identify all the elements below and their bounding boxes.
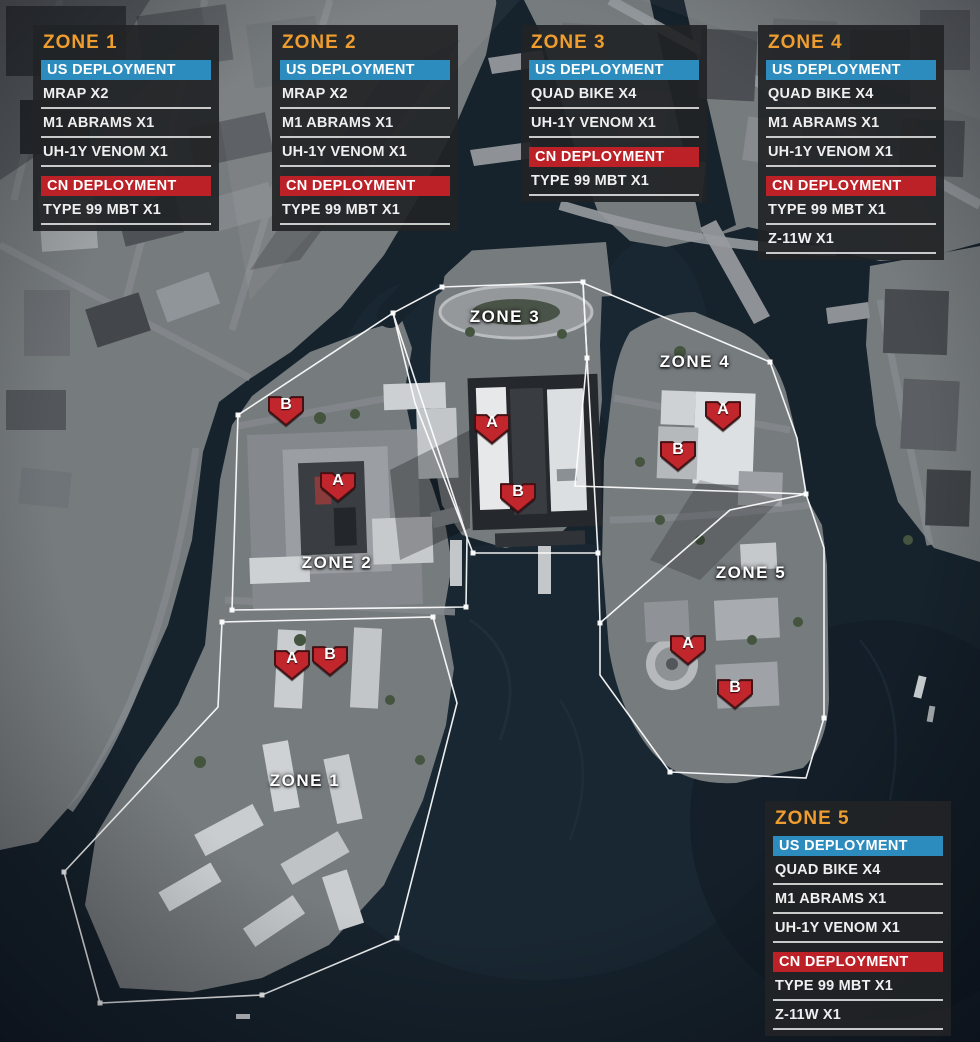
flag-letter: A <box>703 401 743 419</box>
vehicle-row: M1 ABRAMS X1 <box>41 109 211 138</box>
vehicle-row: TYPE 99 MBT X1 <box>766 196 936 225</box>
vehicle-row: UH-1Y VENOM X1 <box>766 138 936 167</box>
flag-letter: B <box>658 441 698 459</box>
vehicle-row: TYPE 99 MBT X1 <box>280 196 450 225</box>
vehicle-row: QUAD BIKE X4 <box>773 856 943 885</box>
vehicle-row: UH-1Y VENOM X1 <box>529 109 699 138</box>
map-zone-label-5: ZONE 5 <box>716 563 786 583</box>
vehicle-row: MRAP X2 <box>280 80 450 109</box>
zone-5-panel: ZONE 5 US DEPLOYMENT QUAD BIKE X4 M1 ABR… <box>765 801 951 1036</box>
zone-2-panel: ZONE 2 US DEPLOYMENT MRAP X2 M1 ABRAMS X… <box>272 25 458 231</box>
flag-letter: A <box>668 635 708 653</box>
cn-deployment-header: CN DEPLOYMENT <box>766 176 936 196</box>
cn-deployment-header: CN DEPLOYMENT <box>280 176 450 196</box>
vehicle-row: TYPE 99 MBT X1 <box>41 196 211 225</box>
vehicle-row: TYPE 99 MBT X1 <box>529 167 699 196</box>
vehicle-row: M1 ABRAMS X1 <box>766 109 936 138</box>
flag-letter: A <box>318 472 358 490</box>
flag-marker: B <box>715 674 755 712</box>
vehicle-row: UH-1Y VENOM X1 <box>280 138 450 167</box>
flag-letter: A <box>472 414 512 432</box>
us-deployment-header: US DEPLOYMENT <box>41 60 211 80</box>
zone-title: ZONE 1 <box>41 29 211 60</box>
zone-3-panel: ZONE 3 US DEPLOYMENT QUAD BIKE X4 UH-1Y … <box>521 25 707 202</box>
vehicle-row: QUAD BIKE X4 <box>529 80 699 109</box>
map-zone-label-2: ZONE 2 <box>302 553 372 573</box>
flag-marker: A <box>272 645 312 683</box>
vehicle-row: QUAD BIKE X4 <box>766 80 936 109</box>
flag-marker: A <box>318 467 358 505</box>
map-zone-label-1: ZONE 1 <box>270 771 340 791</box>
flag-marker: A <box>703 396 743 434</box>
flag-marker: B <box>658 436 698 474</box>
vehicle-row: M1 ABRAMS X1 <box>280 109 450 138</box>
map-zone-label-4: ZONE 4 <box>660 352 730 372</box>
map-screen: ZONE 1 ZONE 2 ZONE 3 ZONE 4 ZONE 5 A B A… <box>0 0 980 1042</box>
vehicle-row: TYPE 99 MBT X1 <box>773 972 943 1001</box>
flag-letter: B <box>715 679 755 697</box>
flag-letter: B <box>498 483 538 501</box>
vehicle-row: UH-1Y VENOM X1 <box>773 914 943 943</box>
vehicle-row: Z-11W X1 <box>766 225 936 254</box>
flag-letter: B <box>310 646 350 664</box>
cn-deployment-header: CN DEPLOYMENT <box>773 952 943 972</box>
vehicle-row: M1 ABRAMS X1 <box>773 885 943 914</box>
vehicle-row: Z-11W X1 <box>773 1001 943 1030</box>
us-deployment-header: US DEPLOYMENT <box>529 60 699 80</box>
flag-marker: B <box>266 391 306 429</box>
us-deployment-header: US DEPLOYMENT <box>773 836 943 856</box>
flag-letter: A <box>272 650 312 668</box>
zone-title: ZONE 3 <box>529 29 699 60</box>
zone-4-panel: ZONE 4 US DEPLOYMENT QUAD BIKE X4 M1 ABR… <box>758 25 944 260</box>
flag-marker: A <box>472 409 512 447</box>
vehicle-row: MRAP X2 <box>41 80 211 109</box>
us-deployment-header: US DEPLOYMENT <box>766 60 936 80</box>
cn-deployment-header: CN DEPLOYMENT <box>529 147 699 167</box>
flag-marker: A <box>668 630 708 668</box>
flag-letter: B <box>266 396 306 414</box>
map-zone-label-3: ZONE 3 <box>470 307 540 327</box>
us-deployment-header: US DEPLOYMENT <box>280 60 450 80</box>
cn-deployment-header: CN DEPLOYMENT <box>41 176 211 196</box>
zone-1-panel: ZONE 1 US DEPLOYMENT MRAP X2 M1 ABRAMS X… <box>33 25 219 231</box>
zone-title: ZONE 2 <box>280 29 450 60</box>
flag-marker: B <box>310 641 350 679</box>
zone-title: ZONE 5 <box>773 805 943 836</box>
zone-title: ZONE 4 <box>766 29 936 60</box>
flag-marker: B <box>498 478 538 516</box>
vehicle-row: UH-1Y VENOM X1 <box>41 138 211 167</box>
